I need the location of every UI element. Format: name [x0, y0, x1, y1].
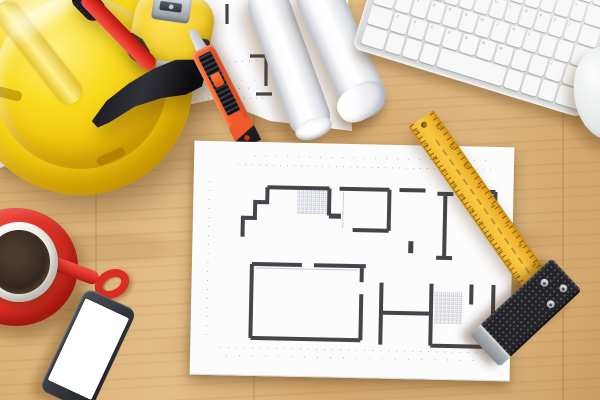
construction-desk-scene: `1234567890-=QWERTYUIOP[]ASDFGHJKL;'ZXCV…: [0, 0, 600, 400]
coffee-surface: [0, 230, 50, 294]
